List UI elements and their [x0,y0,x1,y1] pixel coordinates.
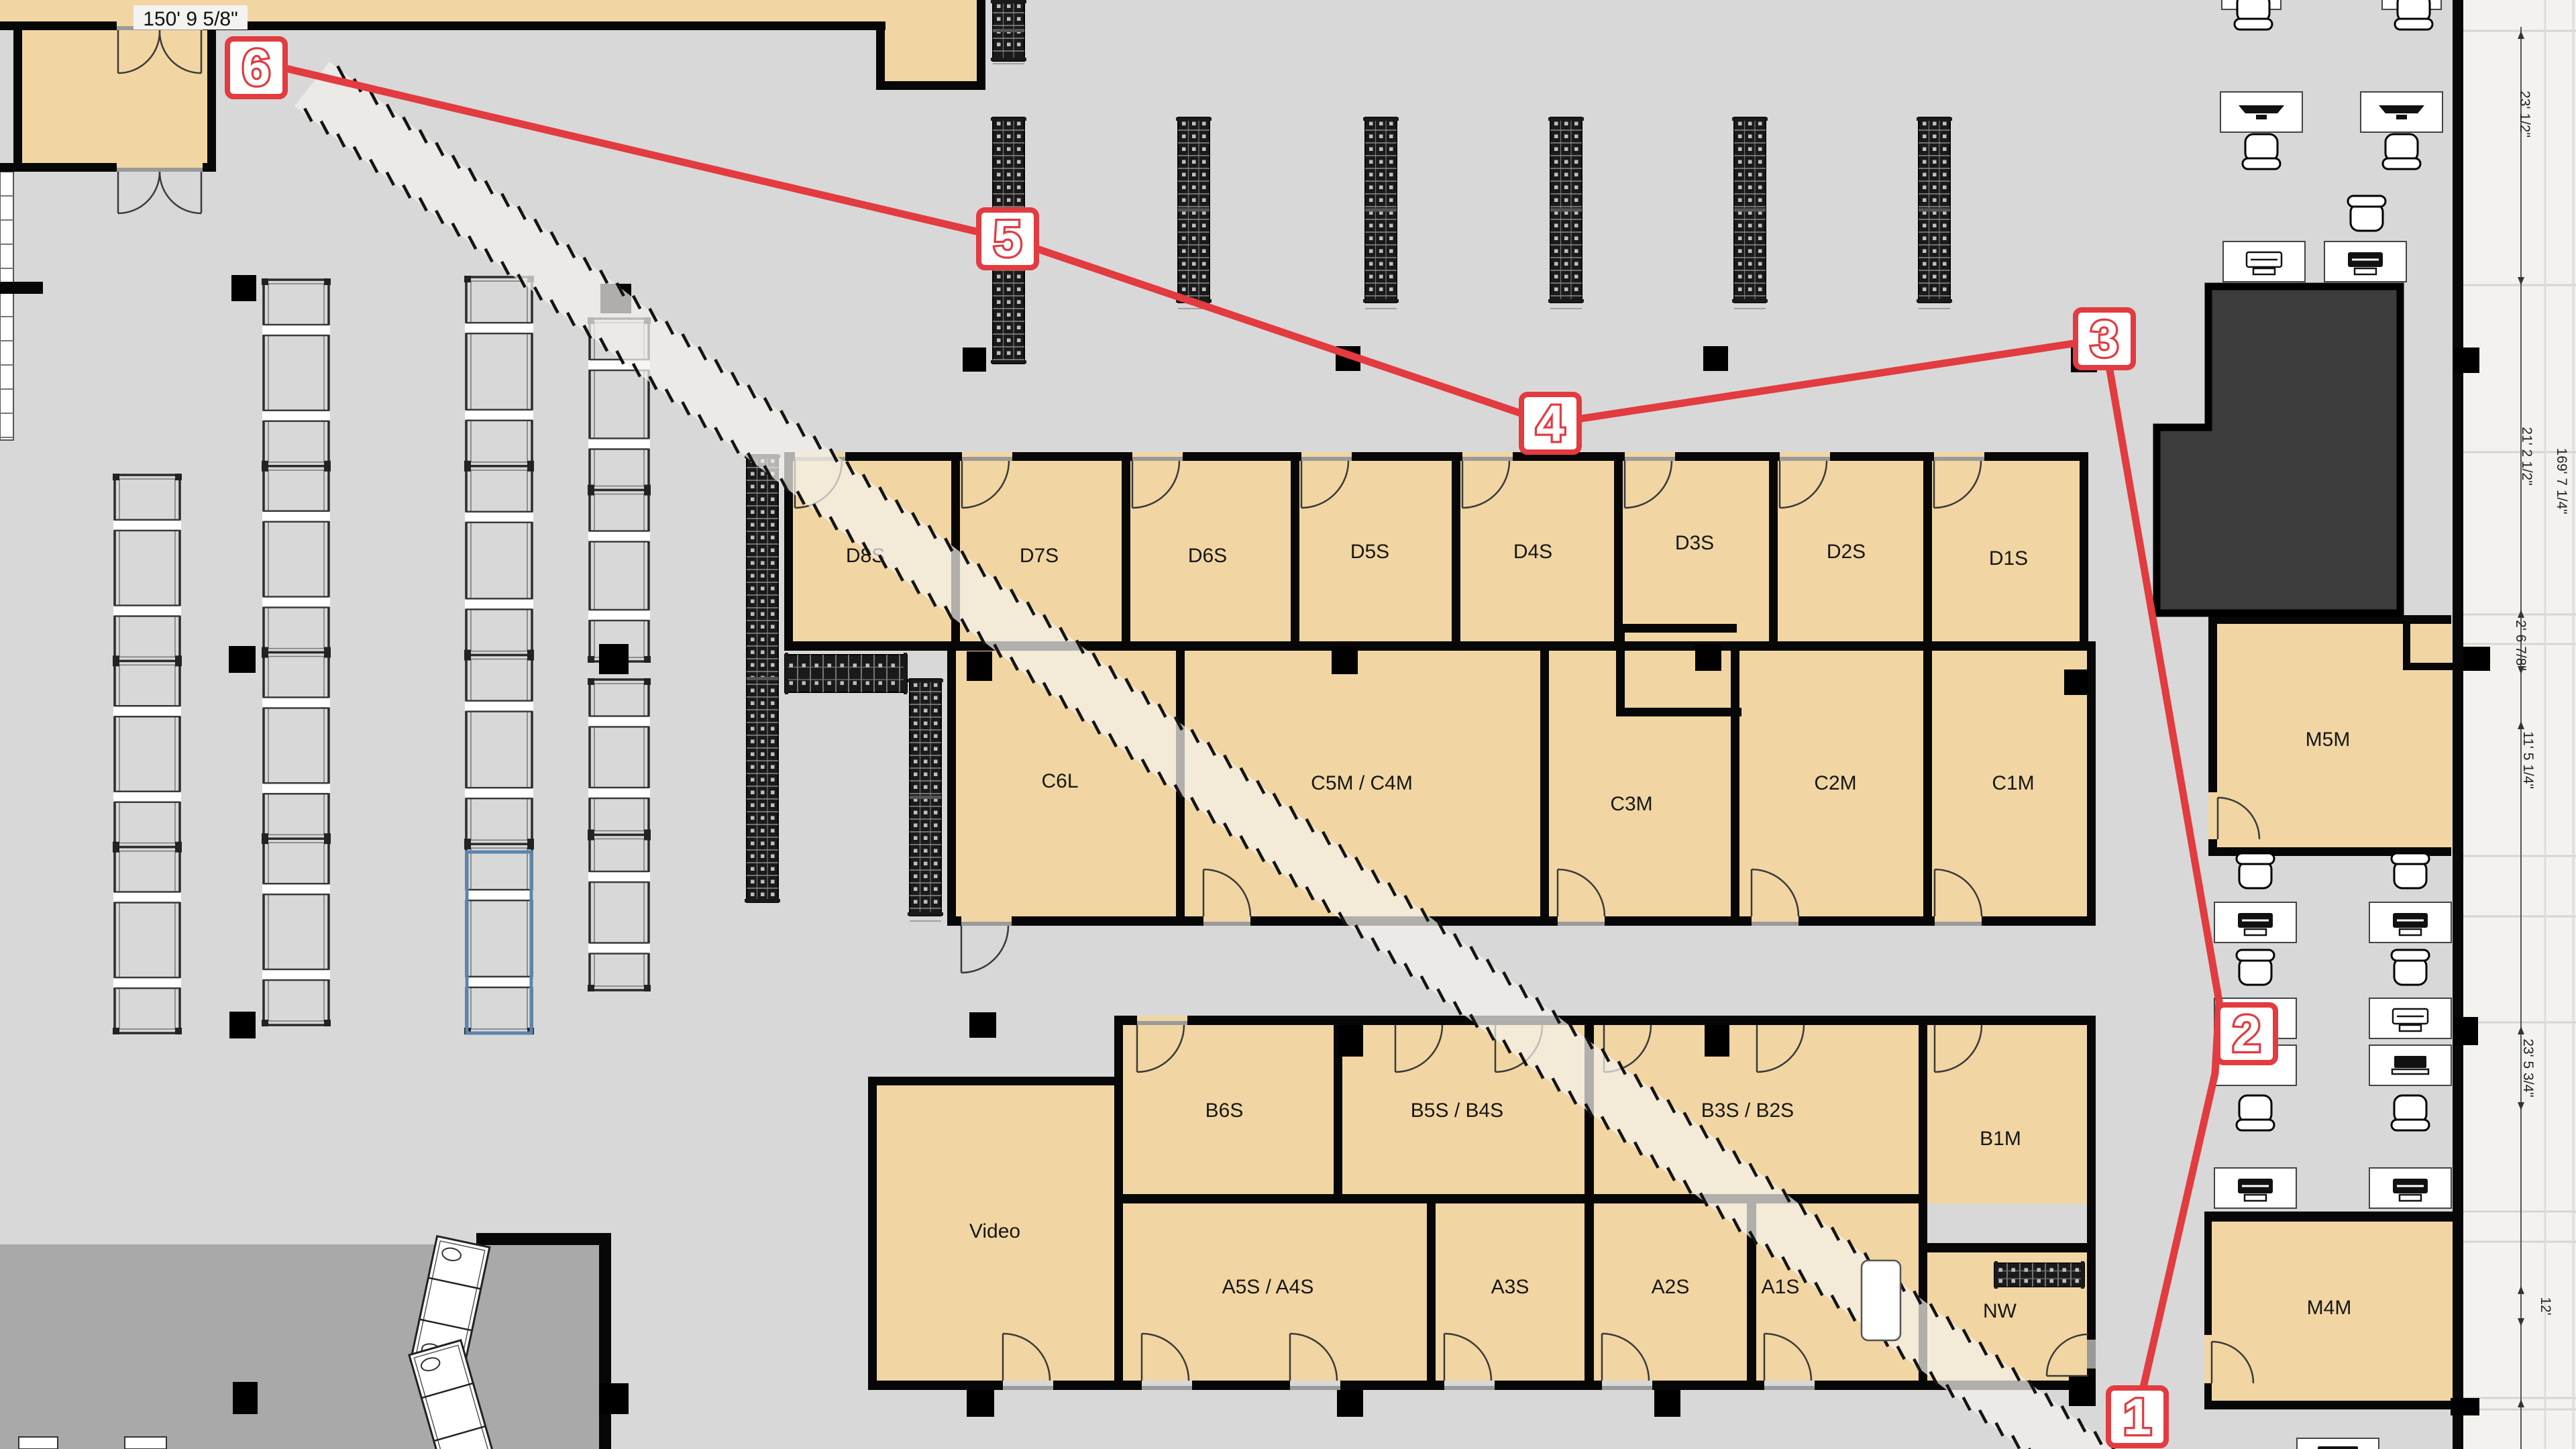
svg-text:C5M / C4M: C5M / C4M [1311,772,1413,794]
svg-text:D2S: D2S [1827,541,1866,563]
svg-text:D6S: D6S [1188,545,1227,567]
svg-text:M4M: M4M [2307,1297,2352,1319]
svg-text:Video: Video [969,1220,1020,1242]
svg-text:169' 7 1/4": 169' 7 1/4" [2554,447,2569,514]
svg-text:A3S: A3S [1491,1276,1529,1298]
svg-text:D1S: D1S [1989,547,2028,570]
svg-text:4: 4 [1536,395,1564,452]
svg-text:M5M: M5M [2306,729,2351,751]
svg-text:C6L: C6L [1041,770,1078,792]
svg-text:B1M: B1M [1980,1128,2021,1150]
svg-text:2' 6 7/8": 2' 6 7/8" [2513,620,2528,671]
svg-text:1: 1 [2123,1389,2151,1446]
svg-text:6: 6 [242,40,270,97]
svg-text:C2M: C2M [1814,772,1856,794]
svg-text:D4S: D4S [1513,541,1552,563]
svg-text:C3M: C3M [1610,793,1652,815]
svg-text:11' 5 1/4": 11' 5 1/4" [2520,731,2536,789]
svg-text:12': 12' [2538,1297,2553,1315]
svg-text:150' 9 5/8": 150' 9 5/8" [143,8,238,30]
svg-text:B5S / B4S: B5S / B4S [1411,1099,1503,1122]
svg-text:23' 5 3/4": 23' 5 3/4" [2520,1038,2536,1097]
svg-text:23' 1/2": 23' 1/2" [2517,91,2532,138]
svg-text:D3S: D3S [1675,532,1714,554]
svg-text:A2S: A2S [1652,1276,1690,1298]
svg-text:2: 2 [2233,1006,2261,1063]
svg-text:3: 3 [2090,311,2118,368]
svg-text:D5S: D5S [1350,541,1389,563]
svg-text:D7S: D7S [1020,545,1059,567]
svg-text:A5S / A4S: A5S / A4S [1222,1276,1314,1298]
svg-text:NW: NW [1983,1300,2017,1322]
svg-text:B3S / B2S: B3S / B2S [1701,1099,1794,1122]
svg-text:B6S: B6S [1205,1099,1244,1122]
svg-text:A1S: A1S [1762,1276,1800,1298]
svg-text:C1M: C1M [1992,772,2034,794]
svg-text:21' 2 1/2": 21' 2 1/2" [2519,427,2534,485]
svg-text:5: 5 [994,211,1022,268]
